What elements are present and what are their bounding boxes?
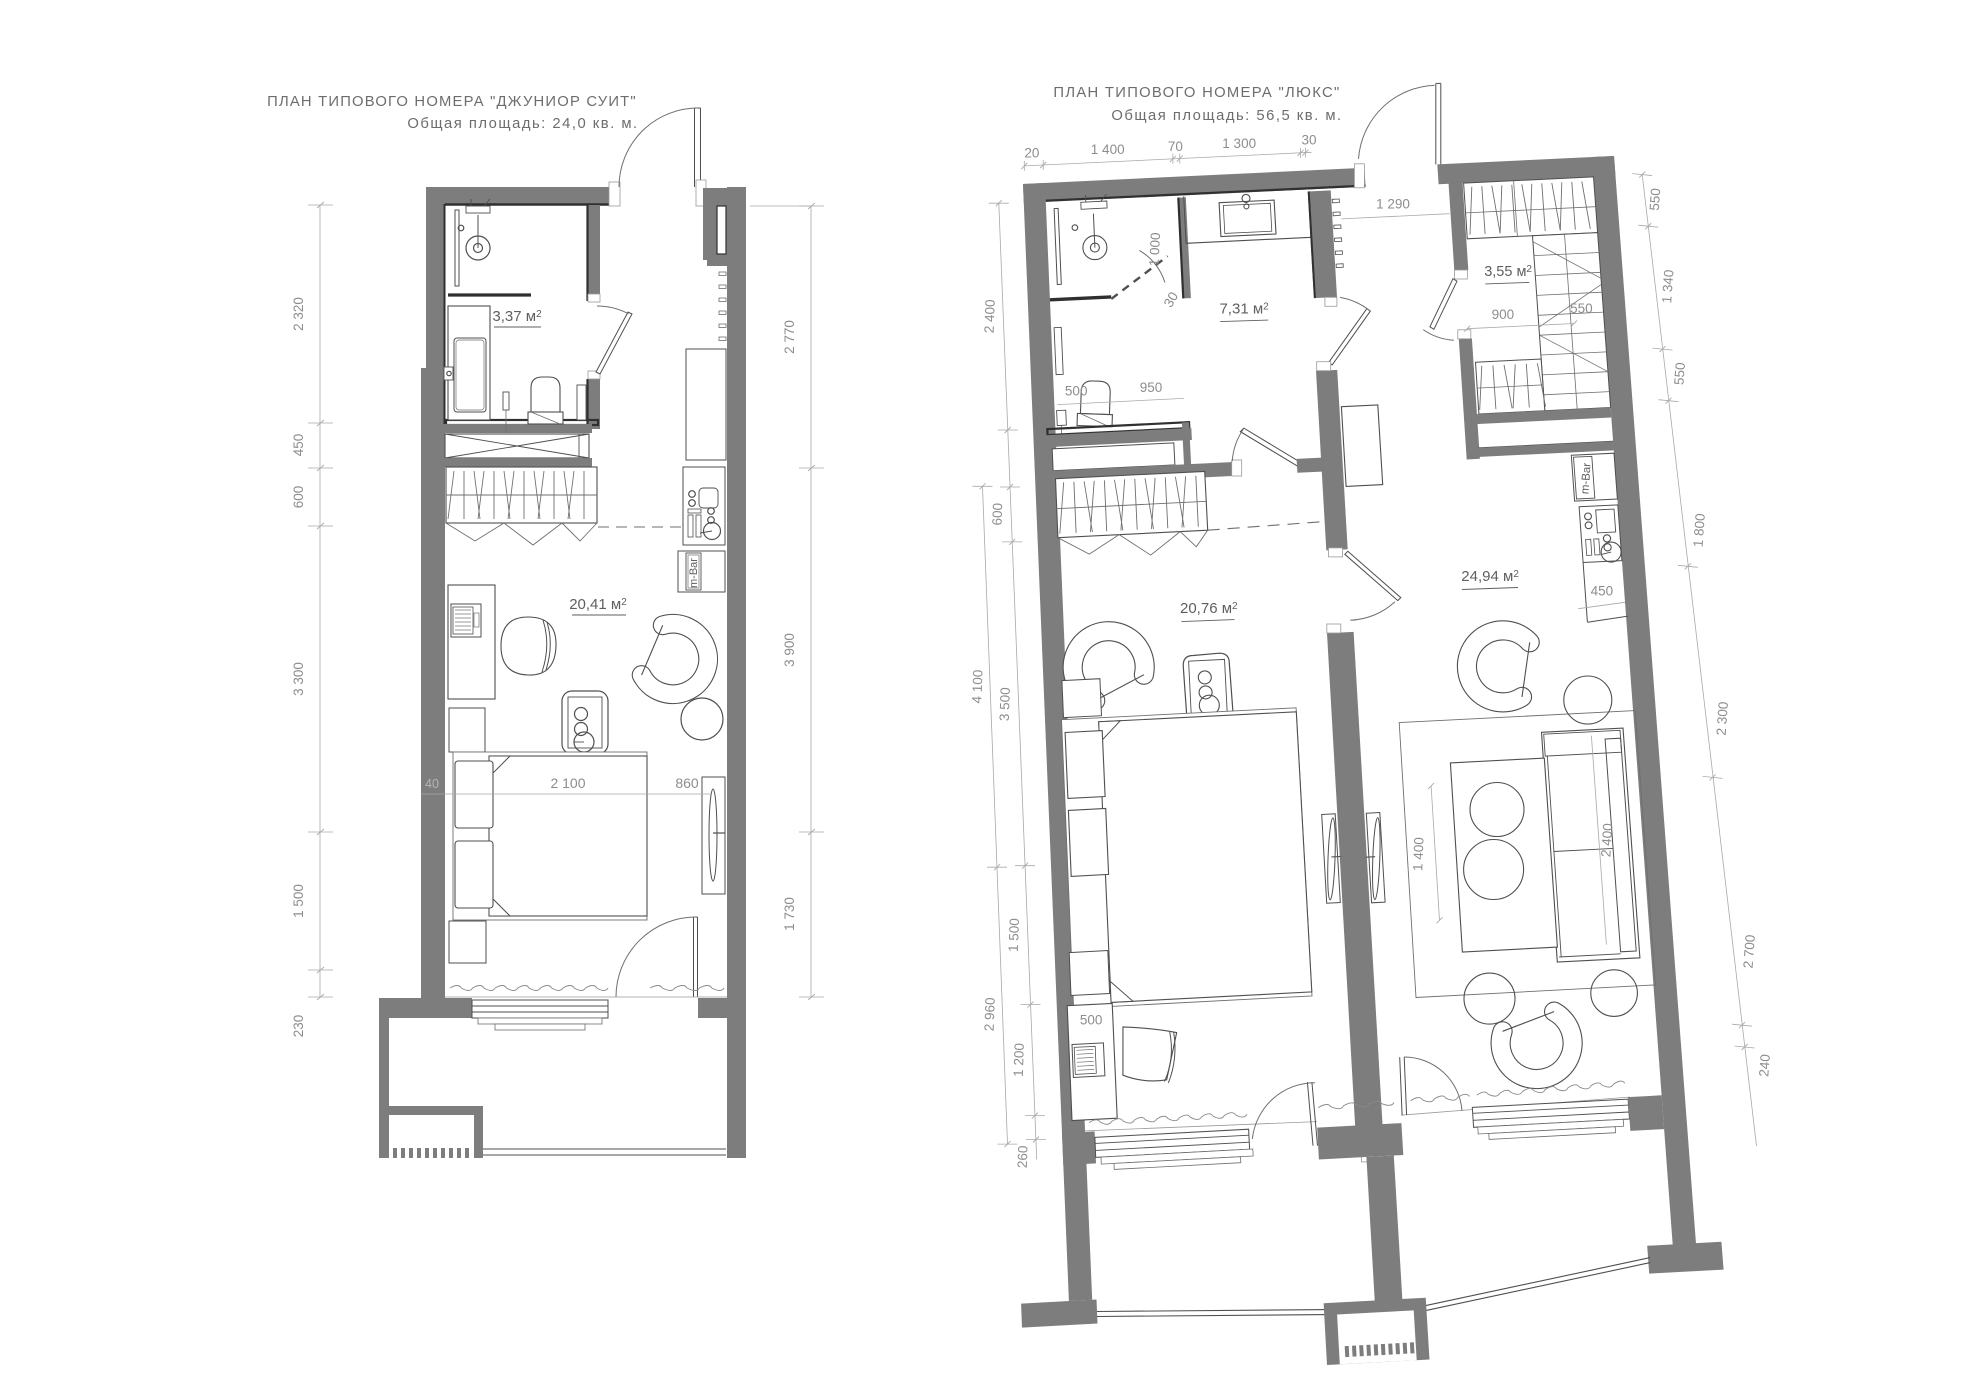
svg-text:Общая площадь: 24,0 кв. м.: Общая площадь: 24,0 кв. м. <box>407 116 638 132</box>
svg-text:860: 860 <box>675 775 699 791</box>
svg-text:30: 30 <box>1301 133 1316 148</box>
svg-text:m-Bar: m-Bar <box>1579 462 1593 494</box>
svg-text:2 400: 2 400 <box>982 299 998 333</box>
svg-text:2 770: 2 770 <box>782 320 797 354</box>
svg-text:3 900: 3 900 <box>782 633 797 667</box>
svg-text:1 500: 1 500 <box>1006 918 1022 952</box>
svg-text:240: 240 <box>1756 1054 1773 1078</box>
svg-text:600: 600 <box>291 486 306 509</box>
svg-text:7,31 м2: 7,31 м2 <box>1219 301 1269 318</box>
svg-text:ПЛАН ТИПОВОГО НОМЕРА "ДЖУНИОР: ПЛАН ТИПОВОГО НОМЕРА "ДЖУНИОР СУИТ" <box>267 94 637 110</box>
svg-text:1 400: 1 400 <box>1091 142 1125 157</box>
svg-text:2 100: 2 100 <box>550 775 585 791</box>
svg-text:3 500: 3 500 <box>997 687 1013 721</box>
svg-text:450: 450 <box>291 434 306 457</box>
svg-text:1 730: 1 730 <box>782 897 797 931</box>
svg-text:2 320: 2 320 <box>291 297 306 331</box>
svg-text:230: 230 <box>291 1015 306 1038</box>
svg-text:20,41 м2: 20,41 м2 <box>569 596 627 613</box>
svg-text:1 500: 1 500 <box>291 884 306 918</box>
svg-text:1 200: 1 200 <box>1011 1043 1027 1077</box>
svg-text:950: 950 <box>1140 380 1163 395</box>
svg-text:550: 550 <box>1570 301 1593 316</box>
svg-text:4 100: 4 100 <box>969 669 985 703</box>
svg-text:3,55 м2: 3,55 м2 <box>1484 264 1532 280</box>
svg-text:1 340: 1 340 <box>1659 269 1676 304</box>
svg-text:1 290: 1 290 <box>1376 196 1410 211</box>
svg-text:3 300: 3 300 <box>291 662 306 696</box>
svg-text:260: 260 <box>1015 1145 1031 1168</box>
svg-text:24,94 м2: 24,94 м2 <box>1461 568 1519 585</box>
svg-text:2 300: 2 300 <box>1714 701 1731 736</box>
svg-text:1 300: 1 300 <box>1222 136 1256 151</box>
svg-text:550: 550 <box>1671 362 1688 386</box>
svg-text:ПЛАН ТИПОВОГО НОМЕРА "ЛЮКС": ПЛАН ТИПОВОГО НОМЕРА "ЛЮКС" <box>1053 85 1340 101</box>
svg-text:1 400: 1 400 <box>1410 837 1426 871</box>
svg-text:2 700: 2 700 <box>1741 934 1758 969</box>
svg-text:550: 550 <box>1647 188 1664 212</box>
svg-text:500: 500 <box>1065 384 1088 399</box>
svg-text:20: 20 <box>1024 146 1039 161</box>
svg-text:500: 500 <box>1080 1013 1103 1028</box>
svg-text:600: 600 <box>990 503 1006 526</box>
svg-text:450: 450 <box>1591 584 1614 599</box>
svg-text:900: 900 <box>1492 307 1515 322</box>
svg-text:1 800: 1 800 <box>1691 513 1708 548</box>
svg-text:70: 70 <box>1168 139 1183 154</box>
svg-text:3,37 м2: 3,37 м2 <box>492 308 542 325</box>
svg-text:2 960: 2 960 <box>982 997 998 1031</box>
svg-text:1 000: 1 000 <box>1146 232 1163 267</box>
svg-text:40: 40 <box>425 777 439 791</box>
svg-text:2 400: 2 400 <box>1598 823 1615 858</box>
svg-text:Общая площадь: 56,5 кв. м.: Общая площадь: 56,5 кв. м. <box>1111 108 1342 124</box>
svg-text:m-Bar: m-Bar <box>688 558 700 588</box>
svg-text:20,76 м2: 20,76 м2 <box>1180 600 1238 617</box>
